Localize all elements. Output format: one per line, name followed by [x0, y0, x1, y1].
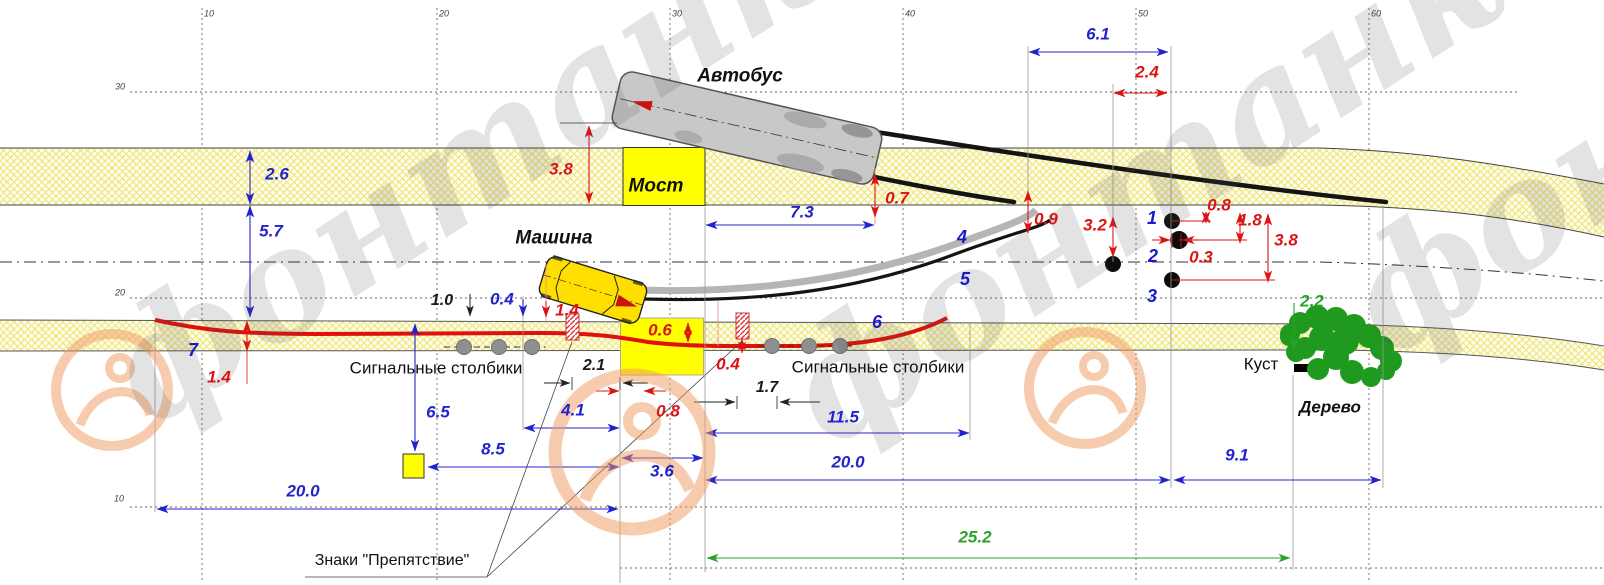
- car: [537, 254, 649, 326]
- watermark-texts: фонтанка.ру фонтанка.ру фонтанка.ру: [74, 0, 1604, 480]
- sign-leader-lines: [305, 341, 742, 577]
- signal-posts-left: [444, 340, 546, 355]
- obstacle-sign-2: [736, 313, 749, 339]
- marker-square: [403, 454, 424, 478]
- accident-scheme: фонтанка.ру фонтанка.ру фонтанка.ру 1020…: [0, 0, 1604, 585]
- obstacle-sign-1: [566, 314, 579, 340]
- scheme-drawing: фонтанка.ру фонтанка.ру фонтанка.ру: [0, 0, 1604, 585]
